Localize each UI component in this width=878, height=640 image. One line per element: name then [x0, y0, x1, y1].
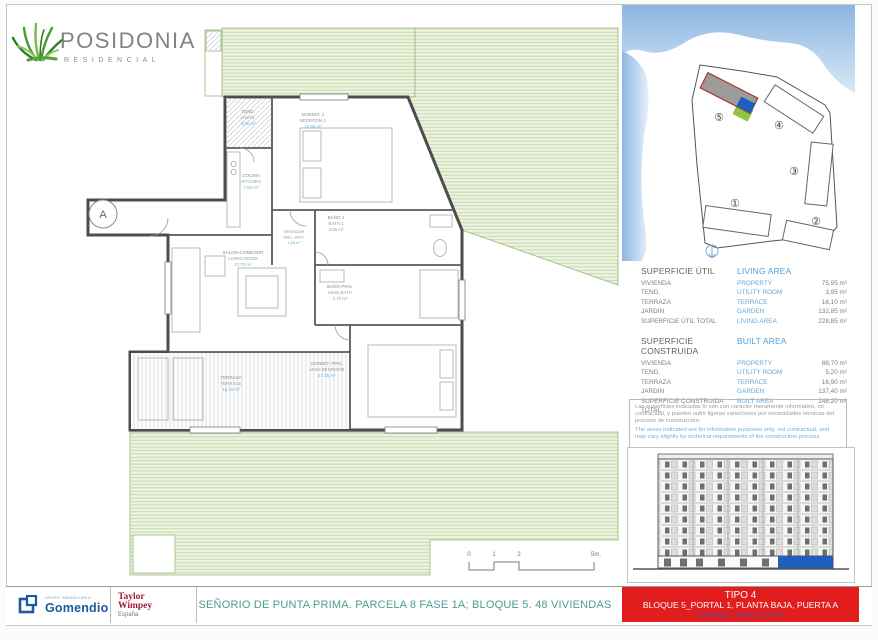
table-total-row: SUPERFICIE ÚTIL TOTALLIVING AREA228,85 m… — [641, 317, 847, 326]
svg-text:LIVING ROOM: LIVING ROOM — [228, 256, 258, 261]
svg-text:⑤: ⑤ — [714, 112, 724, 124]
table-row: TERRAZATERRACE16,10 m² — [641, 298, 847, 307]
taylor-line2: Wimpey — [118, 602, 196, 611]
svg-text:BAÑO PPAL: BAÑO PPAL — [327, 283, 353, 289]
gomendio-icon — [18, 595, 42, 615]
floor-plan-drawing: POSIDONIA RESIDENCIAL — [7, 5, 622, 585]
disclaimer-en: The areas indicated are for information … — [635, 427, 841, 441]
disclaimer-box: Las superficies indicadas lo son con car… — [629, 399, 847, 448]
plan-sheet: POSIDONIA RESIDENCIAL — [0, 0, 878, 640]
svg-text:BATH 1: BATH 1 — [328, 221, 344, 226]
svg-text:MAIN BEDROOM: MAIN BEDROOM — [310, 367, 345, 372]
svg-text:17,25 m²: 17,25 m² — [318, 373, 336, 378]
sheet-title-cell: SEÑORIO DE PUNTA PRIMA. PARCELA 8 FASE 1… — [188, 587, 622, 623]
brand-subtitle: RESIDENCIAL — [64, 57, 160, 64]
svg-text:3,85 m²: 3,85 m² — [329, 227, 344, 232]
table-title-en: LIVING AREA — [737, 266, 847, 276]
svg-text:TERRACE: TERRACE — [221, 381, 242, 386]
svg-text:0: 0 — [467, 551, 471, 558]
svg-text:BAÑO 1: BAÑO 1 — [328, 214, 345, 220]
disclaimer-es: Las superficies indicadas lo son con car… — [635, 404, 841, 425]
table-header: SUPERFICIE CONSTRUIDA BUILT AREA — [641, 336, 847, 356]
svg-text:3,70 m²: 3,70 m² — [333, 296, 348, 301]
svg-text:VESTIDOR: VESTIDOR — [284, 229, 305, 234]
entrance-label: A — [99, 209, 107, 221]
room-label-terrace: TERRAZA TERRACE 16,10 m² — [220, 375, 242, 392]
unit-identifier-box: TIPO 4 BLOQUE 5_PORTAL 1, PLANTA BAJA, P… — [622, 587, 859, 622]
unit-location-en: Staircase 1, Floor 0, Door A — [696, 611, 784, 619]
table-row: TEND.UTILITY ROOM3,95 m² — [641, 288, 847, 297]
gomendio-subtitle: GRUPO INMOBILIARIO — [45, 596, 108, 600]
svg-text:①: ① — [730, 198, 740, 210]
gomendio-name: Gomendio — [45, 601, 108, 615]
table-row: VIVIENDAPROPERTY75,95 m² — [641, 279, 847, 288]
svg-text:LAVAD.: LAVAD. — [241, 115, 256, 120]
room-label-tend: TEND. LAVAD. 3,95 m² — [241, 109, 256, 126]
table-row: TEND.UTILITY ROOM5,20 m² — [641, 368, 847, 377]
entrance-marker: A — [89, 200, 117, 228]
table-row: TERRAZATERRACE16,90 m² — [641, 378, 847, 387]
table-title-es: SUPERFICIE CONSTRUIDA — [641, 336, 737, 356]
svg-text:5m.: 5m. — [591, 551, 602, 558]
apartment-outline: A — [88, 94, 465, 433]
svg-text:③: ③ — [789, 166, 799, 178]
title-block: GRUPO INMOBILIARIO Gomendio Taylor Wimpe… — [6, 586, 872, 625]
svg-text:④: ④ — [774, 120, 784, 132]
facade — [633, 454, 849, 569]
taylor-wimpey-logo: Taylor Wimpey España — [110, 587, 197, 623]
svg-text:1: 1 — [492, 551, 496, 558]
svg-text:BEDROOM 1: BEDROOM 1 — [300, 118, 327, 123]
svg-text:DORMIT. PPAL: DORMIT. PPAL — [311, 361, 343, 366]
table-row: JARDINGARDEN137,40 m² — [641, 387, 847, 396]
scale-bar: 0 1 2 5m. — [467, 551, 601, 570]
table-living-area: SUPERFICIE ÚTIL LIVING AREA VIVIENDAPROP… — [641, 266, 847, 326]
svg-text:3,95 m²: 3,95 m² — [241, 121, 256, 126]
svg-text:27,70 m²: 27,70 m² — [234, 262, 252, 267]
svg-text:10,85 m²: 10,85 m² — [304, 124, 322, 129]
room-label-kitchen: COCINA KITCHEN 7,50 m² — [241, 173, 261, 190]
table-row: VIVIENDAPROPERTY88,70 m² — [641, 359, 847, 368]
gomendio-logo: GRUPO INMOBILIARIO Gomendio — [12, 587, 111, 623]
table-header: SUPERFICIE ÚTIL LIVING AREA — [641, 266, 847, 276]
svg-text:TERRAZA: TERRAZA — [220, 375, 242, 380]
svg-text:KITCHEN: KITCHEN — [241, 179, 260, 184]
highlighted-unit — [778, 556, 833, 568]
svg-text:COCINA: COCINA — [242, 173, 261, 178]
svg-text:DORMIT. 1: DORMIT. 1 — [302, 112, 325, 117]
sheet-title: SEÑORIO DE PUNTA PRIMA. PARCELA 8 FASE 1… — [198, 599, 611, 611]
svg-text:1,65 m²: 1,65 m² — [287, 240, 301, 245]
plant-icon — [13, 24, 62, 60]
svg-text:②: ② — [811, 216, 821, 228]
svg-text:7,50 m²: 7,50 m² — [244, 185, 259, 190]
site-plan: ① ② ③ ④ ⑤ — [622, 5, 855, 261]
room-label-bath1: BAÑO 1 BATH 1 3,85 m² — [328, 214, 345, 232]
svg-text:16,10 m²: 16,10 m² — [222, 387, 240, 392]
table-row: JARDINGARDEN132,85 m² — [641, 307, 847, 316]
building-elevation — [627, 447, 855, 583]
svg-text:MAIN BATH: MAIN BATH — [328, 290, 352, 295]
svg-text:TEND.: TEND. — [241, 109, 255, 114]
table-title-es: SUPERFICIE ÚTIL — [641, 266, 737, 276]
taylor-line3: España — [118, 612, 196, 618]
table-title-en: BUILT AREA — [737, 336, 847, 356]
svg-text:SALON-COMEDOR: SALON-COMEDOR — [222, 250, 264, 255]
svg-text:WALL WRD.: WALL WRD. — [283, 235, 305, 240]
brand-name: POSIDONIA — [60, 28, 196, 53]
posidonia-logo: POSIDONIA RESIDENCIAL — [13, 24, 196, 64]
svg-text:2: 2 — [517, 551, 521, 558]
